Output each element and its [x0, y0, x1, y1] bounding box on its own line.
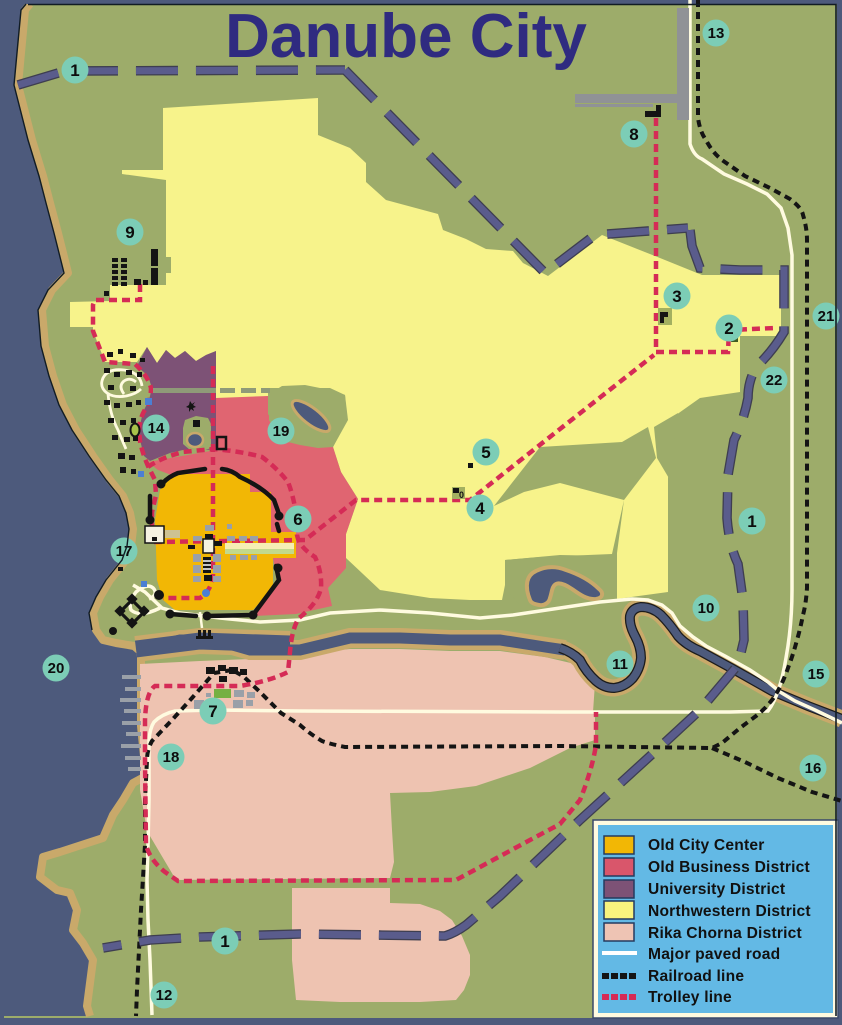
- svg-text:5: 5: [481, 443, 490, 462]
- svg-text:Trolley line: Trolley line: [648, 989, 732, 1006]
- svg-text:6: 6: [293, 510, 302, 529]
- svg-text:21: 21: [818, 308, 835, 325]
- svg-text:2: 2: [724, 319, 733, 338]
- svg-text:22: 22: [766, 372, 783, 389]
- svg-text:16: 16: [805, 760, 822, 777]
- svg-text:1: 1: [747, 512, 756, 531]
- svg-text:12: 12: [156, 987, 173, 1004]
- svg-text:Old Business District: Old Business District: [648, 859, 810, 876]
- svg-text:Danube City: Danube City: [225, 2, 587, 71]
- svg-text:18: 18: [163, 749, 180, 766]
- svg-text:Railroad line: Railroad line: [648, 968, 744, 985]
- svg-text:1: 1: [70, 61, 79, 80]
- svg-text:10: 10: [698, 600, 715, 617]
- svg-text:11: 11: [612, 656, 628, 673]
- svg-text:Northwestern District: Northwestern District: [648, 903, 811, 920]
- svg-text:9: 9: [125, 223, 134, 242]
- svg-text:17: 17: [116, 543, 133, 560]
- svg-text:Major paved road: Major paved road: [648, 946, 780, 963]
- svg-text:Old City Center: Old City Center: [648, 837, 765, 854]
- svg-text:3: 3: [672, 287, 681, 306]
- svg-text:20: 20: [48, 660, 65, 677]
- svg-text:0: 0: [459, 490, 464, 500]
- svg-text:University District: University District: [648, 881, 785, 898]
- svg-text:Rika Chorna District: Rika Chorna District: [648, 925, 802, 942]
- svg-text:19: 19: [273, 423, 290, 440]
- svg-text:1: 1: [220, 932, 229, 951]
- svg-text:15: 15: [808, 666, 825, 683]
- svg-text:13: 13: [708, 25, 725, 42]
- svg-text:4: 4: [475, 499, 485, 518]
- svg-text:14: 14: [148, 420, 165, 437]
- svg-text:7: 7: [208, 702, 217, 721]
- svg-text:8: 8: [629, 125, 638, 144]
